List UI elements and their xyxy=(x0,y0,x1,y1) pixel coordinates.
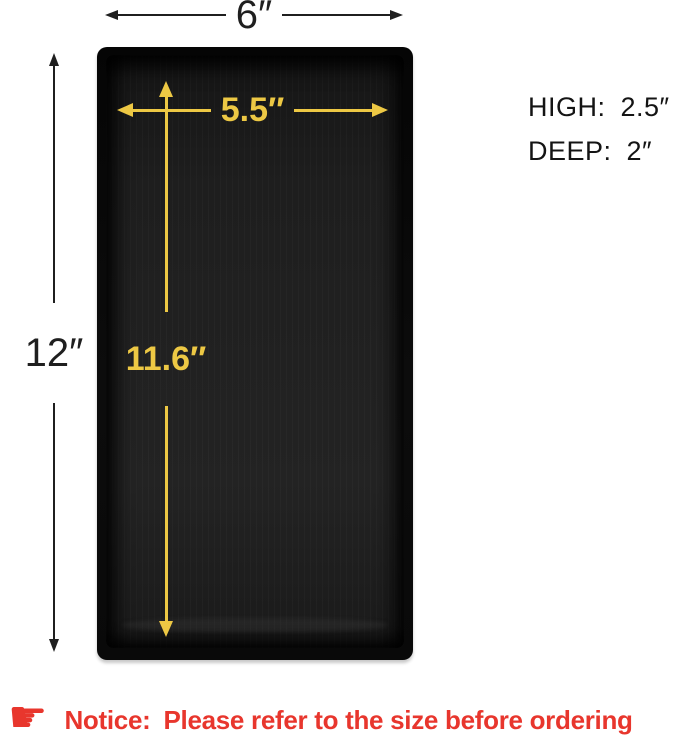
notice-message: Notice: Please refer to the size before … xyxy=(64,705,632,736)
inner-width-dimension: 5.5″ xyxy=(117,95,388,125)
arrowhead-down-icon xyxy=(159,621,173,637)
notice-bar: ☛ Notice: Please refer to the size befor… xyxy=(8,698,679,742)
arrowhead-right-icon xyxy=(390,10,403,20)
pointing-hand-icon: ☛ xyxy=(8,696,47,740)
specs-panel: HIGH: 2.5″ DEEP: 2″ xyxy=(528,92,670,167)
inner-width-label: 5.5″ xyxy=(221,93,285,127)
inner-depth-dimension: 11.6″ xyxy=(124,81,208,637)
arrowhead-left-icon xyxy=(117,103,133,117)
notice-label: Notice: xyxy=(64,705,150,736)
arrowhead-right-icon xyxy=(372,103,388,117)
product-dimension-diagram: { "diagram": { "outer_width_label": "6″"… xyxy=(0,0,679,744)
dimension-line xyxy=(294,109,372,112)
outer-width-label: 6″ xyxy=(236,0,272,35)
notice-text: Please refer to the size before ordering xyxy=(163,705,632,736)
spec-high-value: 2.5″ xyxy=(621,92,670,123)
dimension-line xyxy=(165,97,168,312)
spec-row-high: HIGH: 2.5″ xyxy=(528,92,670,123)
outer-height-dimension: 12″ xyxy=(22,53,86,652)
dimension-line xyxy=(133,109,211,112)
dimension-line xyxy=(118,14,226,16)
arrowhead-left-icon xyxy=(105,10,118,20)
dimension-line xyxy=(165,406,168,621)
spec-row-deep: DEEP: 2″ xyxy=(528,136,670,167)
spec-deep-label: DEEP: xyxy=(528,136,612,167)
outer-height-label: 12″ xyxy=(25,333,84,373)
dimension-line xyxy=(53,66,55,303)
dimension-line xyxy=(53,403,55,640)
inner-depth-label: 11.6″ xyxy=(126,342,207,376)
spec-high-label: HIGH: xyxy=(528,92,606,123)
arrowhead-up-icon xyxy=(49,53,59,66)
dimension-line xyxy=(282,14,390,16)
arrowhead-down-icon xyxy=(49,639,59,652)
spec-deep-value: 2″ xyxy=(627,136,653,167)
outer-width-dimension: 6″ xyxy=(105,0,403,30)
